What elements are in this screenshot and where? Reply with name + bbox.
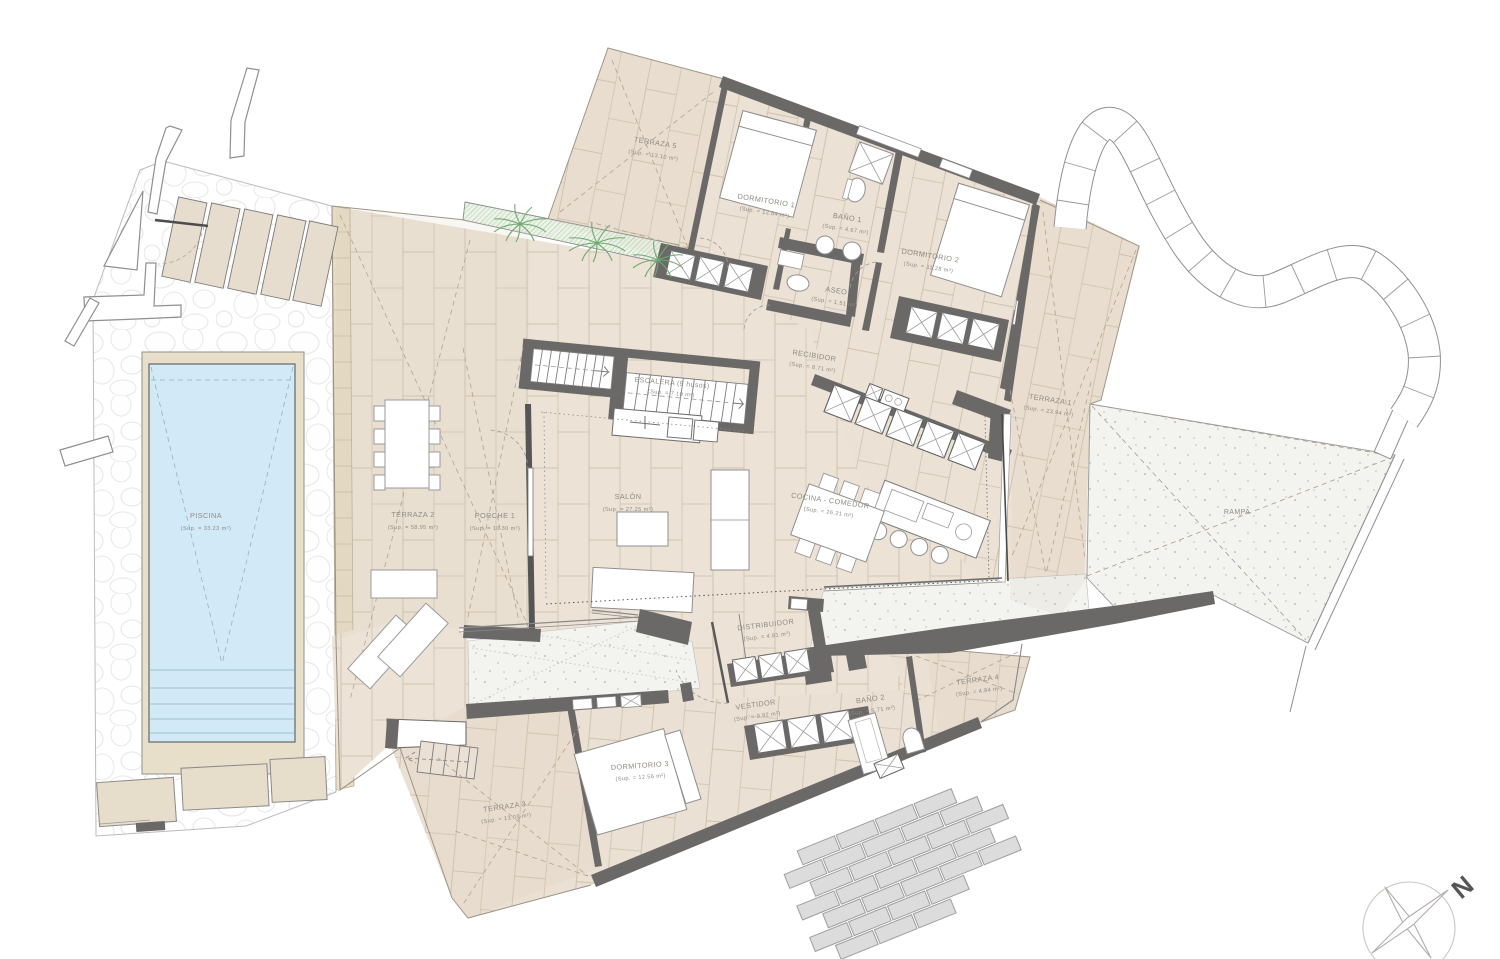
svg-text:SALÓN: SALÓN bbox=[615, 492, 642, 501]
svg-text:RAMPA: RAMPA bbox=[1224, 509, 1250, 516]
svg-text:(Sup. = 58.95 m²): (Sup. = 58.95 m²) bbox=[388, 525, 438, 531]
svg-text:PISCINA: PISCINA bbox=[190, 511, 222, 520]
svg-text:(Sup. = 27.25 m²): (Sup. = 27.25 m²) bbox=[603, 507, 653, 513]
svg-text:(Sup. = 10.30 m²): (Sup. = 10.30 m²) bbox=[470, 526, 520, 532]
svg-text:(Sup. = 33.23 m²): (Sup. = 33.23 m²) bbox=[181, 526, 231, 532]
svg-text:PORCHE 1: PORCHE 1 bbox=[475, 511, 516, 520]
svg-text:TERRAZA 2: TERRAZA 2 bbox=[391, 510, 434, 519]
